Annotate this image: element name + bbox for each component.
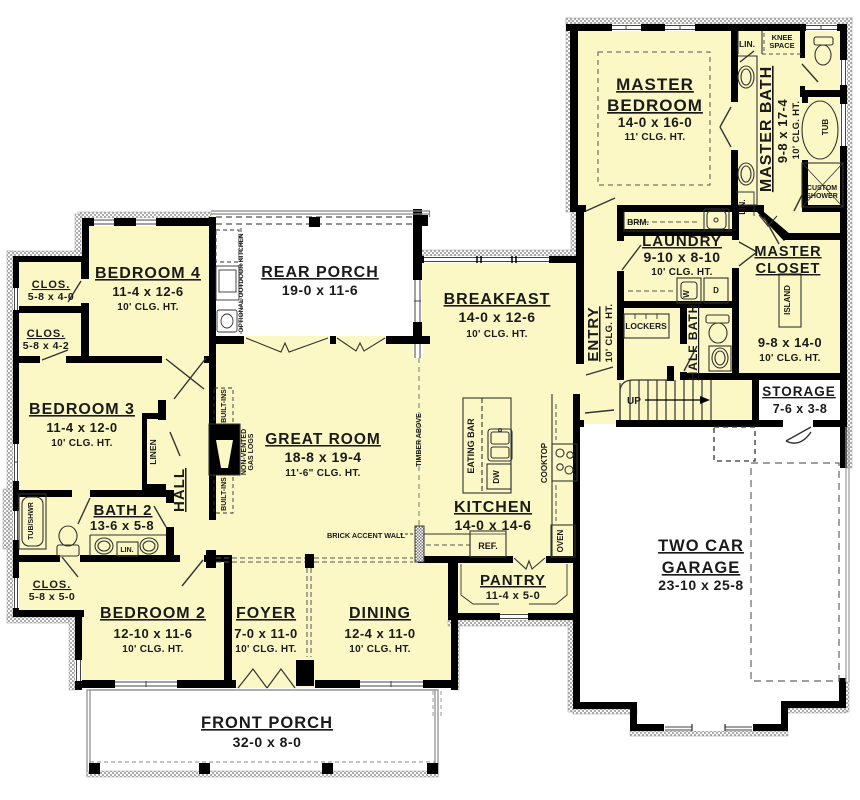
svg-text:12-4 x 11-0: 12-4 x 11-0 <box>344 626 415 641</box>
svg-text:DINING: DINING <box>349 605 411 622</box>
svg-text:11-4 x 5-0: 11-4 x 5-0 <box>486 590 541 602</box>
svg-text:9-8 x 17-4: 9-8 x 17-4 <box>775 99 790 164</box>
svg-text:REF.: REF. <box>478 541 498 551</box>
svg-text:REAR PORCH: REAR PORCH <box>261 264 379 281</box>
svg-text:TUB/SHWR: TUB/SHWR <box>28 502 35 540</box>
svg-text:LOCKERS: LOCKERS <box>625 321 667 331</box>
svg-text:BREAKFAST: BREAKFAST <box>444 291 551 308</box>
svg-text:GREAT ROOM: GREAT ROOM <box>265 431 381 448</box>
svg-text:BEDROOM: BEDROOM <box>607 96 703 115</box>
svg-text:BRM.: BRM. <box>627 217 649 227</box>
svg-text:UP: UP <box>627 396 641 407</box>
svg-text:7-0 x 11-0: 7-0 x 11-0 <box>234 626 298 641</box>
svg-text:LIN.: LIN. <box>738 199 747 214</box>
svg-text:BEDROOM 4: BEDROOM 4 <box>95 265 201 282</box>
svg-text:BEDROOM 2: BEDROOM 2 <box>100 605 206 622</box>
svg-text:13-6 x 5-8: 13-6 x 5-8 <box>90 518 154 533</box>
svg-text:KITCHEN: KITCHEN <box>454 499 532 516</box>
svg-text:TWO CAR: TWO CAR <box>658 537 744 555</box>
svg-text:11-4 x 12-0: 11-4 x 12-0 <box>46 420 117 435</box>
svg-text:ENTRY: ENTRY <box>585 306 602 361</box>
svg-text:9-10 x 8-10: 9-10 x 8-10 <box>643 249 720 265</box>
svg-text:10' CLG. HT.: 10' CLG. HT. <box>117 302 179 313</box>
svg-text:BRICK ACCENT WALL: BRICK ACCENT WALL <box>327 531 406 540</box>
svg-text:14-0 x 16-0: 14-0 x 16-0 <box>618 115 693 130</box>
svg-text:7-6 x 3-8: 7-6 x 3-8 <box>773 402 828 416</box>
svg-text:10' CLG. HT.: 10' CLG. HT. <box>651 267 713 278</box>
svg-text:FOYER: FOYER <box>236 605 296 622</box>
svg-text:10' CLG. HT.: 10' CLG. HT. <box>604 304 615 363</box>
svg-text:11' CLG. HT.: 11' CLG. HT. <box>625 132 686 143</box>
svg-text:GAS LOGS: GAS LOGS <box>248 433 255 470</box>
svg-text:23-10 x 25-8: 23-10 x 25-8 <box>658 577 743 593</box>
svg-text:NON-VENTED: NON-VENTED <box>241 429 248 475</box>
svg-text:BATH 2: BATH 2 <box>93 502 152 519</box>
svg-text:ISLAND: ISLAND <box>783 285 792 315</box>
svg-text:10' CLG. HT.: 10' CLG. HT. <box>122 644 184 655</box>
svg-text:11-4 x 12-6: 11-4 x 12-6 <box>112 284 183 299</box>
svg-text:PANTRY: PANTRY <box>480 572 546 589</box>
svg-text:14-0 x 14-6: 14-0 x 14-6 <box>454 517 531 533</box>
svg-text:9-8 x 14-0: 9-8 x 14-0 <box>758 335 822 350</box>
svg-text:10' CLG. HT.: 10' CLG. HT. <box>349 644 411 655</box>
svg-text:MASTER: MASTER <box>754 244 821 260</box>
svg-text:14-0 x 12-6: 14-0 x 12-6 <box>458 309 535 325</box>
svg-text:10' CLG. HT.: 10' CLG. HT. <box>759 353 821 364</box>
svg-text:EATING BAR: EATING BAR <box>466 418 476 474</box>
svg-text:10' CLG. HT.: 10' CLG. HT. <box>466 329 528 340</box>
svg-text:5-8 x 4-2: 5-8 x 4-2 <box>23 340 70 352</box>
svg-text:W: W <box>682 290 691 298</box>
svg-text:LIN.: LIN. <box>120 547 133 554</box>
svg-text:19-0 x 11-6: 19-0 x 11-6 <box>282 282 358 298</box>
svg-text:LAUNDRY: LAUNDRY <box>642 233 722 250</box>
svg-text:CLOS.: CLOS. <box>27 328 66 340</box>
svg-text:11'-6" CLG. HT.: 11'-6" CLG. HT. <box>285 468 361 479</box>
svg-text:CLOS.: CLOS. <box>33 579 72 591</box>
svg-text:CLOSET: CLOSET <box>756 261 821 277</box>
svg-text:LINEN: LINEN <box>148 439 158 465</box>
svg-text:HALL: HALL <box>171 468 188 512</box>
svg-text:MASTER BATH: MASTER BATH <box>758 66 775 192</box>
svg-text:D: D <box>713 286 719 295</box>
svg-text:CUSTOM: CUSTOM <box>807 185 837 192</box>
svg-text:10' CLG. HT.: 10' CLG. HT. <box>51 438 113 449</box>
svg-text:5-8 x 5-0: 5-8 x 5-0 <box>29 591 76 603</box>
svg-text:18-8 x 19-4: 18-8 x 19-4 <box>284 449 361 465</box>
svg-text:STORAGE: STORAGE <box>762 384 836 399</box>
svg-text:TUB: TUB <box>821 119 830 136</box>
svg-text:TIMBER ABOVE: TIMBER ABOVE <box>416 413 423 467</box>
svg-text:5-8 x 4-0: 5-8 x 4-0 <box>28 291 75 303</box>
svg-text:10' CLG. HT.: 10' CLG. HT. <box>791 101 802 160</box>
svg-text:10' CLG. HT.: 10' CLG. HT. <box>235 644 297 655</box>
svg-text:BUILT-INS: BUILT-INS <box>221 477 228 511</box>
svg-text:CLOS.: CLOS. <box>32 279 71 291</box>
svg-text:DW: DW <box>492 470 501 484</box>
svg-text:MASTER: MASTER <box>616 75 694 94</box>
svg-text:LIN.: LIN. <box>739 39 755 49</box>
svg-text:12-10 x 11-6: 12-10 x 11-6 <box>113 626 192 641</box>
svg-text:OVEN: OVEN <box>556 529 565 552</box>
svg-text:HALF BATH: HALF BATH <box>686 304 700 381</box>
svg-text:SPACE: SPACE <box>769 41 794 50</box>
svg-text:SHOWER: SHOWER <box>806 193 838 200</box>
svg-text:FRONT PORCH: FRONT PORCH <box>201 714 333 732</box>
svg-text:GARAGE: GARAGE <box>662 559 740 577</box>
svg-text:OPTIONAL OUTDOOR KITCHEN: OPTIONAL OUTDOOR KITCHEN <box>238 233 245 332</box>
svg-text:BUILT-INS: BUILT-INS <box>221 389 228 423</box>
svg-text:32-0 x 8-0: 32-0 x 8-0 <box>233 734 302 750</box>
svg-text:BEDROOM 3: BEDROOM 3 <box>29 401 135 418</box>
svg-text:COOKTOP: COOKTOP <box>540 442 549 483</box>
